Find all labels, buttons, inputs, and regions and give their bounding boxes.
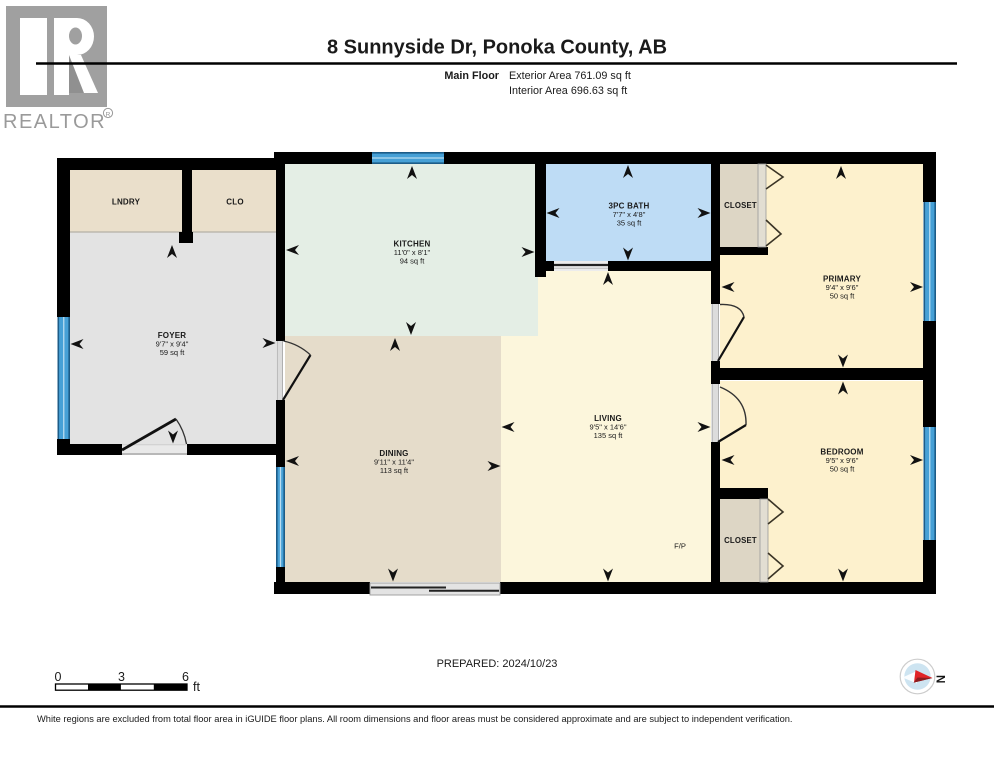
svg-text:Main Floor: Main Floor (444, 70, 499, 82)
svg-text:59 sq ft: 59 sq ft (160, 348, 186, 357)
svg-text:White regions are excluded fro: White regions are excluded from total fl… (37, 714, 793, 724)
svg-text:ft: ft (193, 680, 200, 694)
svg-text:N: N (934, 675, 946, 683)
svg-text:DINING: DINING (379, 449, 408, 458)
svg-text:CLOSET: CLOSET (724, 536, 757, 545)
svg-text:LIVING: LIVING (594, 414, 622, 423)
svg-text:PREPARED: 2024/10/23: PREPARED: 2024/10/23 (437, 658, 558, 670)
svg-text:Interior Area 696.63 sq ft: Interior Area 696.63 sq ft (509, 85, 627, 97)
svg-text:LNDRY: LNDRY (112, 198, 141, 207)
svg-text:35 sq ft: 35 sq ft (617, 219, 643, 228)
svg-text:KITCHEN: KITCHEN (394, 240, 431, 249)
svg-text:REALTOR: REALTOR (3, 111, 106, 133)
svg-text:CLOSET: CLOSET (724, 201, 757, 210)
svg-text:50 sq ft: 50 sq ft (830, 465, 856, 474)
svg-text:50 sq ft: 50 sq ft (830, 292, 856, 301)
svg-text:6: 6 (182, 670, 189, 684)
svg-text:BEDROOM: BEDROOM (820, 448, 863, 457)
svg-text:0: 0 (55, 670, 62, 684)
svg-text:8 Sunnyside Dr, Ponoka County,: 8 Sunnyside Dr, Ponoka County, AB (327, 37, 667, 59)
svg-text:CLO: CLO (226, 198, 244, 207)
svg-text:R: R (106, 111, 111, 118)
svg-text:135 sq ft: 135 sq ft (594, 431, 624, 440)
svg-text:Exterior Area 761.09 sq ft: Exterior Area 761.09 sq ft (509, 70, 631, 82)
svg-text:113 sq ft: 113 sq ft (380, 466, 409, 475)
svg-text:PRIMARY: PRIMARY (823, 275, 861, 284)
svg-text:FOYER: FOYER (158, 331, 187, 340)
svg-text:F/P: F/P (674, 542, 686, 551)
svg-text:3: 3 (118, 670, 125, 684)
svg-text:3PC BATH: 3PC BATH (608, 202, 649, 211)
svg-text:94 sq ft: 94 sq ft (400, 257, 426, 266)
